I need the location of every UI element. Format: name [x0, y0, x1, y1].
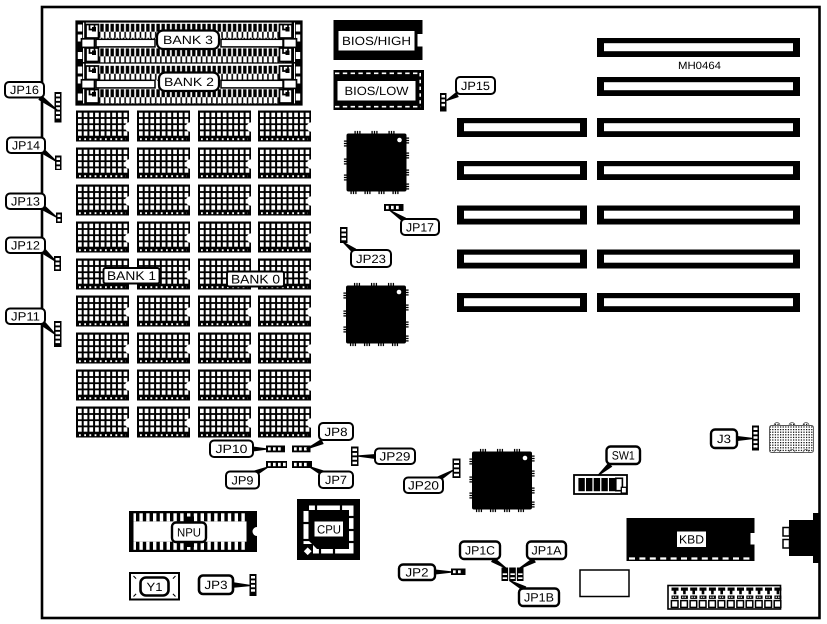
svg-text:JP15: JP15	[461, 79, 490, 93]
svg-text:JP8: JP8	[325, 425, 348, 439]
svg-text:JP20: JP20	[408, 479, 439, 493]
svg-text:JP1B: JP1B	[524, 591, 554, 605]
svg-text:JP2: JP2	[406, 566, 429, 580]
svg-text:BIOS/HIGH: BIOS/HIGH	[342, 34, 411, 48]
svg-text:JP10: JP10	[216, 442, 248, 456]
svg-text:JP17: JP17	[406, 220, 434, 234]
svg-text:JP1A: JP1A	[532, 544, 562, 558]
svg-text:CPU: CPU	[317, 523, 341, 537]
svg-text:JP23: JP23	[356, 252, 386, 266]
svg-text:JP14: JP14	[12, 139, 40, 153]
svg-text:JP29: JP29	[380, 450, 411, 464]
svg-text:JP9: JP9	[232, 473, 254, 487]
svg-text:JP11: JP11	[11, 310, 40, 324]
svg-text:MH0464: MH0464	[678, 60, 721, 72]
svg-text:JP3: JP3	[205, 578, 228, 592]
svg-text:BANK 3: BANK 3	[163, 33, 213, 47]
svg-text:KBD: KBD	[679, 533, 704, 547]
svg-text:BANK 2: BANK 2	[164, 75, 214, 89]
svg-text:SW1: SW1	[612, 449, 635, 463]
svg-text:JP16: JP16	[10, 83, 39, 97]
svg-text:JP12: JP12	[11, 239, 40, 253]
svg-text:Y1: Y1	[147, 580, 163, 594]
svg-text:JP7: JP7	[325, 473, 347, 487]
svg-text:JP13: JP13	[11, 195, 40, 209]
svg-text:JP1C: JP1C	[465, 544, 495, 558]
svg-text:J3: J3	[717, 432, 731, 446]
svg-text:BANK 0: BANK 0	[231, 273, 280, 287]
svg-text:NPU: NPU	[177, 526, 201, 540]
svg-text:BANK 1: BANK 1	[107, 269, 156, 283]
svg-text:BIOS/LOW: BIOS/LOW	[345, 84, 410, 98]
